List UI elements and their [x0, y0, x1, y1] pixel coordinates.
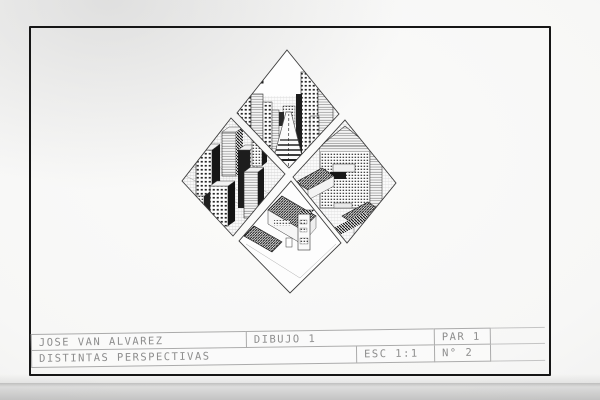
pediment	[318, 126, 372, 148]
subject-text: DIBUJO 1	[254, 333, 317, 346]
sheet-number-text: N° 2	[442, 347, 473, 359]
titleblock-group-cell: PAR 1	[434, 328, 491, 346]
pencil-guide-extension	[491, 344, 545, 362]
author-text: JOSE VAN ALVAREZ	[39, 335, 164, 349]
tower	[210, 181, 235, 226]
titleblock-scale-cell: ESC 1:1	[356, 345, 434, 363]
titleblock-number-cell: N° 2	[434, 345, 491, 363]
pencil-guide-extension	[491, 327, 545, 345]
door	[286, 238, 292, 247]
title-block: JOSE VAN ALVAREZ DIBUJO 1 PAR 1 DISTINTA…	[31, 327, 545, 368]
tower	[190, 192, 210, 223]
scale-text: ESC 1:1	[364, 348, 419, 361]
group-text: PAR 1	[442, 331, 481, 344]
drawing-title-text: DISTINTAS PERSPECTIVAS	[39, 350, 211, 364]
